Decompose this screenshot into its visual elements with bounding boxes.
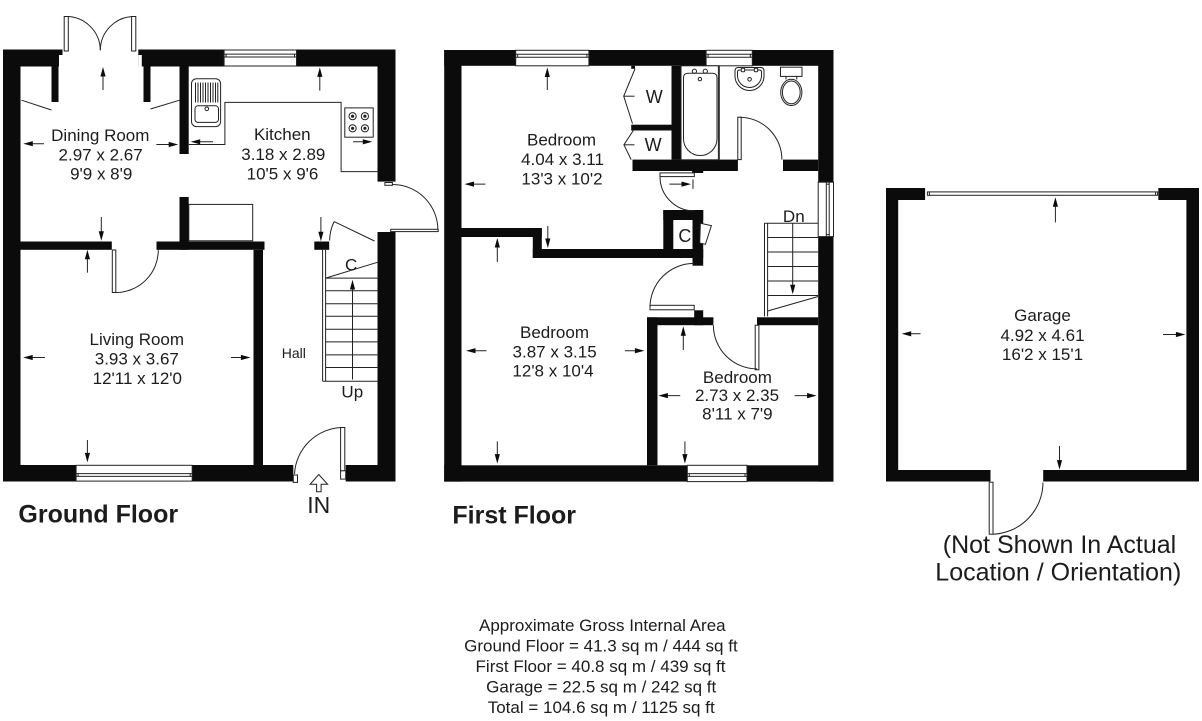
svg-text:C: C	[678, 226, 691, 246]
svg-text:W: W	[645, 135, 662, 155]
svg-text:Ground Floor = 41.3 sq m / 444: Ground Floor = 41.3 sq m / 444 sq ft	[464, 637, 738, 656]
svg-text:C: C	[345, 255, 357, 274]
svg-text:16'2 x 15'1: 16'2 x 15'1	[1002, 345, 1083, 364]
svg-text:Garage: Garage	[1014, 306, 1071, 325]
svg-text:4.04 x 3.11: 4.04 x 3.11	[521, 150, 604, 169]
svg-text:10'5 x 9'6: 10'5 x 9'6	[247, 164, 319, 183]
svg-text:12'11 x 12'0: 12'11 x 12'0	[93, 369, 182, 388]
svg-text:Bedroom: Bedroom	[703, 368, 772, 387]
svg-text:Approximate Gross Internal Are: Approximate Gross Internal Area	[479, 616, 726, 635]
svg-text:Bedroom: Bedroom	[527, 131, 596, 150]
svg-text:Dining Room: Dining Room	[51, 126, 149, 145]
svg-text:8'11 x 7'9: 8'11 x 7'9	[702, 404, 772, 423]
svg-text:9'9 x 8'9: 9'9 x 8'9	[70, 165, 132, 184]
svg-text:Hall: Hall	[282, 345, 306, 361]
svg-text:Up: Up	[341, 382, 363, 401]
svg-text:(Not Shown In Actual: (Not Shown In Actual	[943, 531, 1176, 559]
svg-text:Bedroom: Bedroom	[520, 323, 589, 342]
svg-text:Ground Floor: Ground Floor	[18, 501, 178, 529]
svg-text:W: W	[646, 87, 663, 107]
svg-text:3.18 x 2.89: 3.18 x 2.89	[241, 145, 325, 164]
svg-text:Kitchen: Kitchen	[254, 125, 311, 144]
svg-text:Total = 104.6 sq m / 1125 sq f: Total = 104.6 sq m / 1125 sq ft	[488, 698, 715, 717]
svg-text:Garage = 22.5 sq m / 242 sq ft: Garage = 22.5 sq m / 242 sq ft	[486, 677, 716, 696]
svg-text:3.93 x 3.67: 3.93 x 3.67	[95, 350, 179, 369]
svg-text:12'8 x 10'4: 12'8 x 10'4	[512, 362, 593, 381]
svg-text:Location / Orientation): Location / Orientation)	[935, 558, 1181, 586]
svg-text:4.92 x 4.61: 4.92 x 4.61	[1000, 326, 1084, 345]
svg-text:IN: IN	[307, 492, 330, 518]
svg-text:Living Room: Living Room	[90, 330, 185, 349]
svg-text:3.87 x 3.15: 3.87 x 3.15	[513, 343, 597, 362]
svg-text:2.73 x 2.35: 2.73 x 2.35	[695, 386, 779, 405]
svg-text:First Floor: First Floor	[452, 501, 576, 529]
svg-text:First Floor = 40.8 sq m / 439: First Floor = 40.8 sq m / 439 sq ft	[476, 657, 726, 676]
svg-text:Dn: Dn	[783, 207, 805, 226]
svg-text:2.97 x 2.67: 2.97 x 2.67	[59, 145, 143, 164]
svg-text:13'3 x 10'2: 13'3 x 10'2	[521, 169, 602, 188]
